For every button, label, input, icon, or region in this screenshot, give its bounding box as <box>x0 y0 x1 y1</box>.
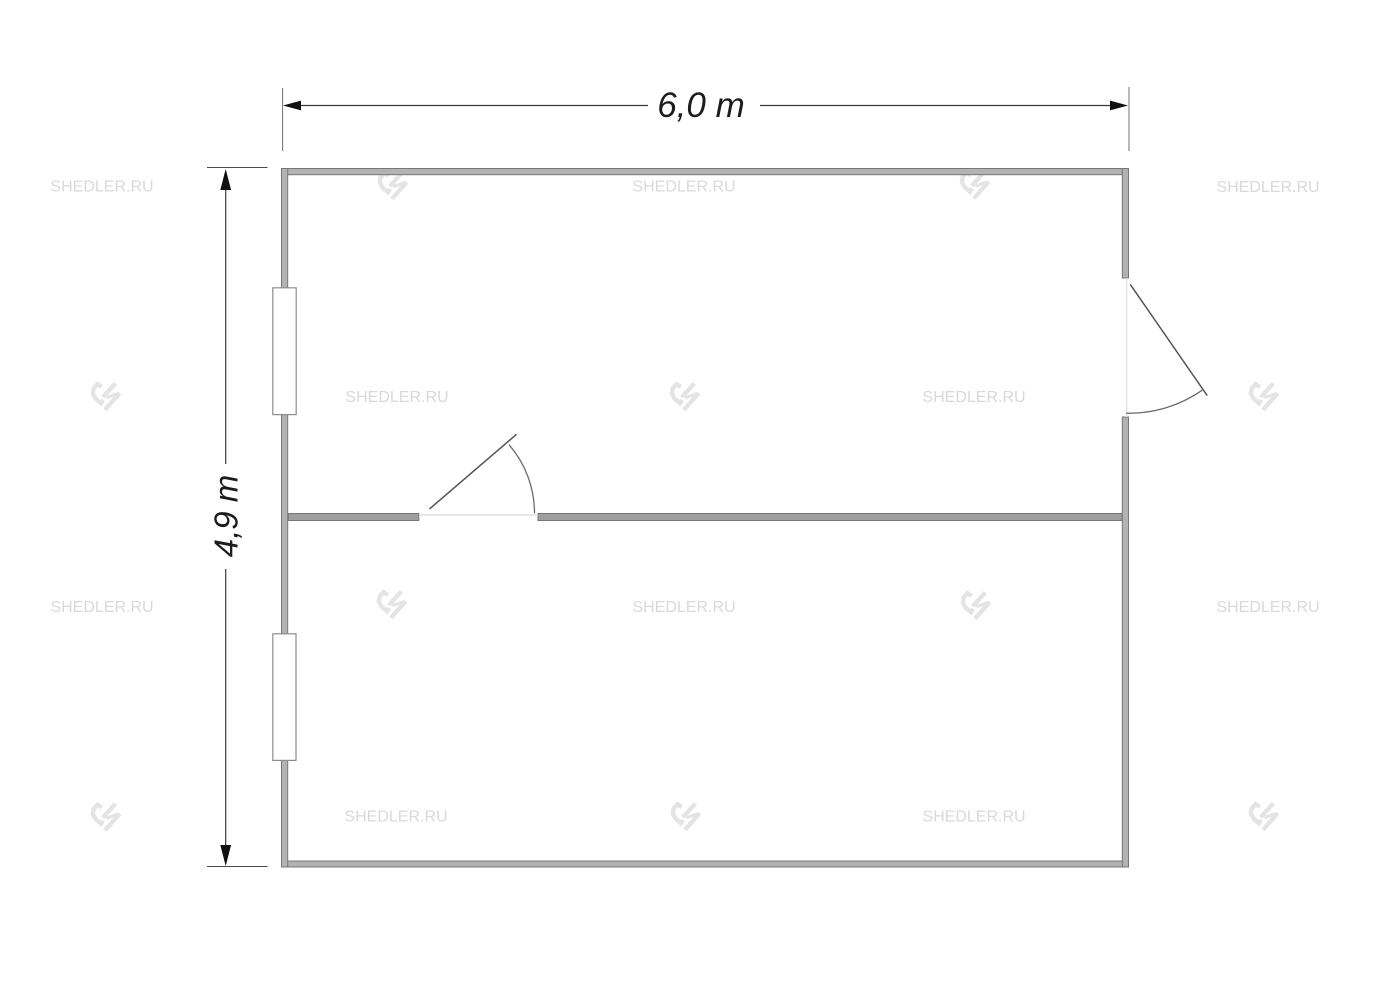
svg-text:4,9 m: 4,9 m <box>208 475 245 558</box>
svg-text:SHEDLER.RU: SHEDLER.RU <box>1216 179 1319 196</box>
svg-text:SHEDLER.RU: SHEDLER.RU <box>632 179 735 196</box>
svg-text:SHEDLER.RU: SHEDLER.RU <box>922 809 1025 826</box>
svg-text:SHEDLER.RU: SHEDLER.RU <box>50 599 153 616</box>
svg-text:SHEDLER.RU: SHEDLER.RU <box>345 389 448 406</box>
svg-text:SHEDLER.RU: SHEDLER.RU <box>632 599 735 616</box>
svg-text:SHEDLER.RU: SHEDLER.RU <box>344 809 447 826</box>
svg-text:SHEDLER.RU: SHEDLER.RU <box>50 179 153 196</box>
svg-text:SHEDLER.RU: SHEDLER.RU <box>922 389 1025 406</box>
svg-text:SHEDLER.RU: SHEDLER.RU <box>1216 599 1319 616</box>
svg-text:6,0 m: 6,0 m <box>657 86 745 125</box>
